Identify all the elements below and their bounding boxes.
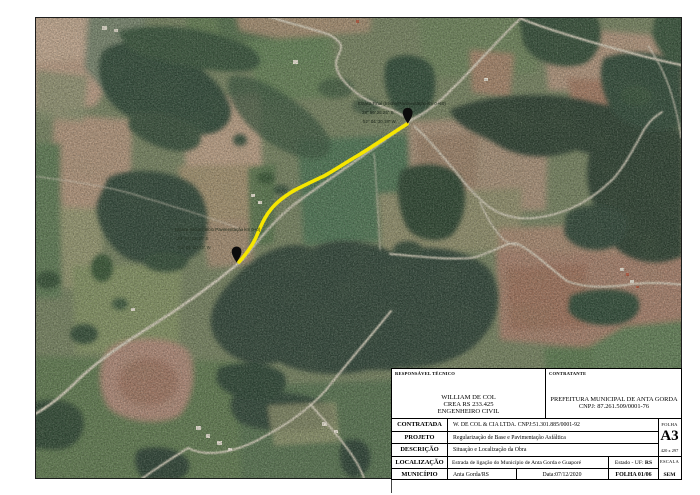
svg-text:Estaca Inicial (Início Pavimen: Estaca Inicial (Início Pavimentação km 0…	[175, 227, 261, 232]
svg-text:52° 05' 10.42" W: 52° 05' 10.42" W	[178, 245, 212, 250]
svg-text:Estaca Final (trecho Pavimenta: Estaca Final (trecho Pavimentação km 0+6…	[358, 101, 446, 106]
svg-text:28° 56' 25.25" S: 28° 56' 25.25" S	[362, 110, 394, 115]
svg-text:28° 57' 02.15" S: 28° 57' 02.15" S	[177, 236, 209, 241]
svg-text:52° 04' 30.18" W: 52° 04' 30.18" W	[363, 119, 397, 124]
